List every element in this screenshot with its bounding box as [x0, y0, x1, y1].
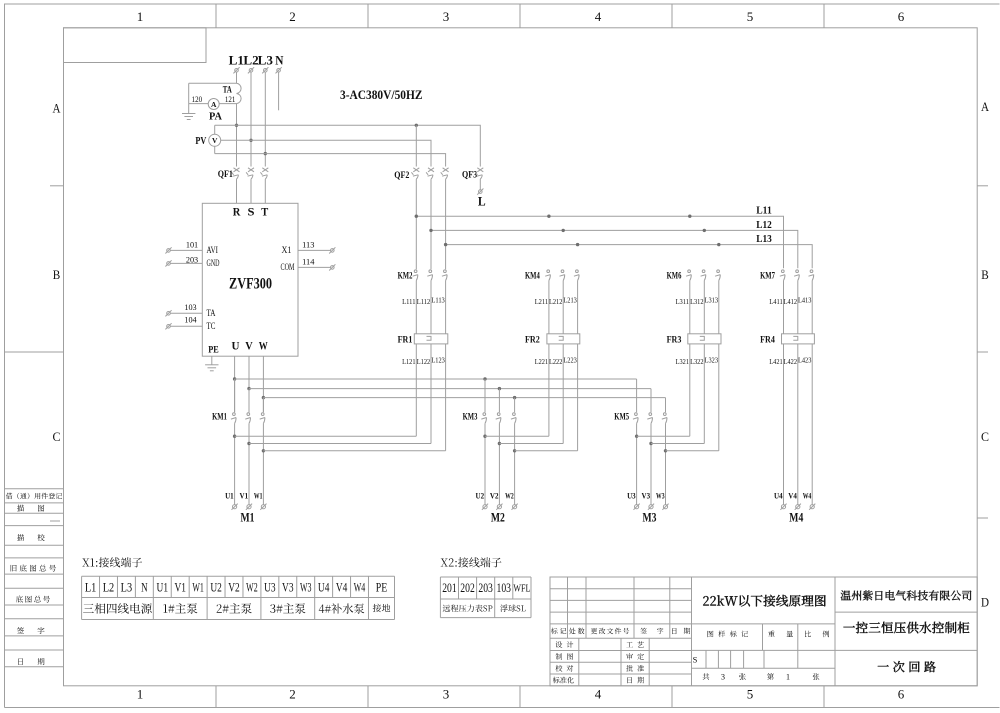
svg-text:S: S — [248, 205, 255, 219]
svg-text:W: W — [259, 338, 268, 352]
svg-text:103: 103 — [184, 302, 196, 312]
svg-text:V2: V2 — [490, 490, 499, 500]
svg-text:L313: L313 — [705, 296, 719, 305]
svg-text:120: 120 — [192, 95, 203, 104]
svg-text:V4: V4 — [336, 579, 348, 594]
svg-text:GND: GND — [207, 258, 220, 268]
svg-text:D: D — [981, 595, 989, 610]
svg-text:L311: L311 — [676, 297, 690, 306]
svg-text:KM6: KM6 — [667, 271, 682, 281]
svg-text:TA: TA — [223, 85, 232, 96]
svg-text:202: 202 — [460, 581, 475, 595]
svg-text:V2: V2 — [228, 579, 240, 594]
svg-text:4: 4 — [595, 9, 602, 24]
svg-text:L11: L11 — [756, 205, 772, 217]
svg-text:121: 121 — [225, 95, 236, 104]
svg-text:6: 6 — [898, 9, 905, 24]
svg-text:104: 104 — [184, 314, 197, 324]
svg-text:TC: TC — [207, 321, 216, 331]
svg-text:R: R — [233, 205, 241, 219]
svg-text:L312: L312 — [690, 297, 704, 306]
svg-text:M4: M4 — [789, 510, 803, 524]
svg-text:A: A — [211, 100, 217, 109]
svg-text:V3: V3 — [282, 579, 294, 594]
svg-text:C: C — [53, 429, 61, 444]
svg-text:203: 203 — [478, 581, 493, 595]
svg-text:L422: L422 — [784, 357, 798, 366]
svg-text:A: A — [981, 99, 990, 114]
svg-text:L2: L2 — [243, 54, 258, 68]
svg-text:W1: W1 — [254, 490, 263, 500]
svg-text:U3: U3 — [627, 490, 636, 500]
svg-text:L213: L213 — [563, 296, 577, 305]
svg-text:3: 3 — [721, 672, 725, 681]
svg-text:C: C — [981, 429, 989, 444]
svg-text:6: 6 — [898, 687, 905, 702]
svg-text:1: 1 — [786, 672, 790, 681]
svg-text:L321: L321 — [676, 357, 690, 366]
svg-text:5: 5 — [747, 687, 754, 702]
svg-text:KM1: KM1 — [212, 412, 227, 422]
svg-text:S: S — [693, 654, 698, 664]
svg-text:V1: V1 — [240, 490, 249, 500]
svg-text:V: V — [212, 136, 218, 145]
svg-text:101: 101 — [186, 239, 198, 249]
svg-text:QF2: QF2 — [394, 170, 410, 180]
svg-text:103: 103 — [497, 581, 512, 595]
svg-text:WFL: WFL — [513, 582, 530, 594]
svg-text:KM4: KM4 — [525, 271, 540, 281]
svg-text:U1: U1 — [225, 490, 234, 500]
svg-text:L3: L3 — [121, 579, 133, 594]
svg-text:FR2: FR2 — [525, 335, 540, 345]
svg-text:M2: M2 — [491, 510, 505, 524]
svg-text:PE: PE — [376, 579, 388, 594]
svg-text:L322: L322 — [690, 357, 704, 366]
svg-text:L13: L13 — [756, 233, 772, 245]
svg-text:L1: L1 — [85, 579, 97, 594]
svg-text:L2: L2 — [103, 579, 115, 594]
svg-text:ZVF300: ZVF300 — [229, 276, 272, 293]
svg-text:1: 1 — [137, 9, 144, 24]
svg-text:114: 114 — [302, 256, 315, 266]
svg-text:L411: L411 — [769, 297, 783, 306]
svg-text:U4: U4 — [774, 490, 783, 500]
svg-text:L323: L323 — [705, 356, 719, 365]
svg-text:L123: L123 — [431, 356, 445, 365]
svg-text:V4: V4 — [788, 490, 797, 500]
svg-text:V: V — [245, 338, 253, 352]
svg-text:L222: L222 — [549, 357, 563, 366]
svg-text:1: 1 — [137, 687, 144, 702]
svg-text:L412: L412 — [784, 297, 798, 306]
svg-text:L223: L223 — [563, 356, 577, 365]
svg-text:PE: PE — [208, 346, 219, 356]
svg-text:203: 203 — [186, 254, 198, 264]
svg-text:L113: L113 — [431, 296, 445, 305]
svg-text:L3: L3 — [258, 54, 273, 68]
svg-text:AVI: AVI — [207, 245, 219, 255]
svg-text:W3: W3 — [300, 579, 312, 594]
svg-text:113: 113 — [302, 239, 314, 249]
svg-text:FR4: FR4 — [760, 335, 775, 345]
svg-text:W2: W2 — [246, 579, 258, 594]
svg-text:L413: L413 — [798, 296, 812, 305]
svg-text:N: N — [141, 579, 148, 594]
svg-text:W4: W4 — [354, 579, 366, 594]
svg-text:L: L — [478, 195, 486, 209]
svg-text:FR3: FR3 — [667, 335, 682, 345]
svg-text:L111: L111 — [402, 297, 416, 306]
svg-text:KM2: KM2 — [398, 271, 413, 281]
svg-text:L221: L221 — [535, 357, 549, 366]
svg-text:L1: L1 — [229, 54, 244, 68]
svg-text:FR1: FR1 — [398, 335, 413, 345]
svg-text:W2: W2 — [505, 490, 514, 500]
svg-text:U2: U2 — [476, 490, 485, 500]
svg-text:L212: L212 — [549, 297, 563, 306]
svg-text:L12: L12 — [756, 219, 772, 231]
svg-text:W3: W3 — [656, 490, 665, 500]
svg-text:U1: U1 — [157, 579, 169, 594]
svg-text:N: N — [275, 54, 283, 68]
svg-text:V1: V1 — [174, 579, 186, 594]
svg-text:M3: M3 — [643, 510, 657, 524]
svg-text:3-AC380V/50HZ: 3-AC380V/50HZ — [340, 88, 423, 102]
svg-text:3: 3 — [443, 687, 450, 702]
svg-text:5: 5 — [747, 9, 754, 24]
svg-text:U3: U3 — [264, 579, 276, 594]
svg-text:L423: L423 — [798, 356, 812, 365]
svg-text:KM3: KM3 — [463, 412, 478, 422]
svg-text:2: 2 — [289, 9, 296, 24]
svg-text:4: 4 — [595, 687, 602, 702]
svg-text:A: A — [53, 101, 62, 116]
svg-text:L112: L112 — [417, 297, 431, 306]
svg-text:TA: TA — [207, 308, 216, 318]
svg-text:U4: U4 — [318, 579, 330, 594]
svg-text:W4: W4 — [803, 490, 812, 500]
svg-text:U: U — [232, 338, 240, 352]
svg-text:L122: L122 — [417, 357, 431, 366]
svg-text:L211: L211 — [535, 297, 549, 306]
svg-text:T: T — [261, 205, 268, 219]
svg-text:2: 2 — [289, 687, 296, 702]
svg-text:W1: W1 — [192, 579, 204, 594]
svg-text:M1: M1 — [241, 510, 255, 524]
svg-text:QF3: QF3 — [462, 170, 478, 180]
svg-text:U2: U2 — [210, 579, 222, 594]
svg-text:B: B — [981, 267, 989, 282]
svg-text:KM5: KM5 — [614, 412, 629, 422]
svg-text:X1: X1 — [282, 245, 292, 255]
svg-text:B: B — [53, 267, 61, 282]
svg-text:3: 3 — [443, 9, 450, 24]
svg-text:KM7: KM7 — [760, 271, 775, 281]
svg-text:201: 201 — [442, 581, 457, 595]
svg-text:PA: PA — [209, 110, 222, 122]
svg-text:COM: COM — [281, 262, 295, 272]
svg-text:L121: L121 — [402, 357, 416, 366]
svg-text:L421: L421 — [769, 357, 783, 366]
svg-text:PV: PV — [195, 135, 206, 147]
svg-text:QF1: QF1 — [218, 169, 234, 179]
svg-text:V3: V3 — [642, 490, 651, 500]
